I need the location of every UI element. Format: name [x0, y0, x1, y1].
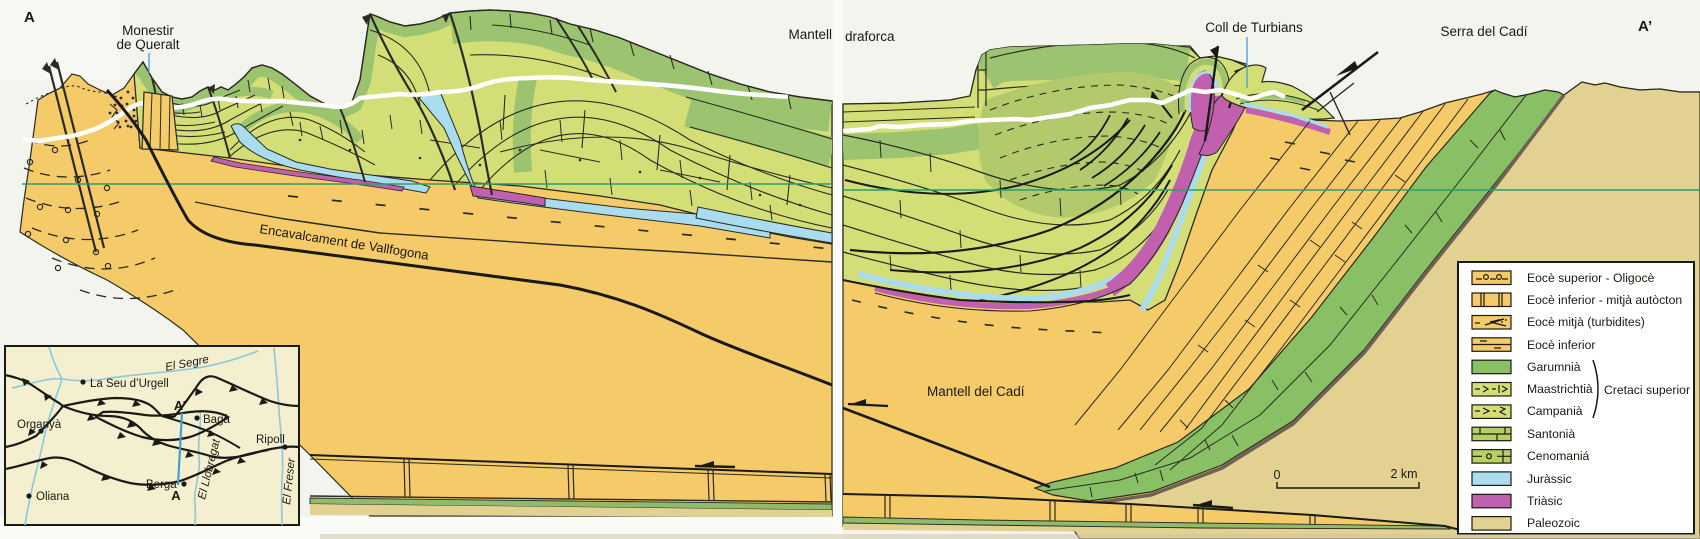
svg-text:Coll de Turbians: Coll de Turbians: [1205, 20, 1303, 35]
svg-text:Eocè inferior: Eocè inferior: [1527, 338, 1595, 352]
svg-text:Eocè superior - Oligocè: Eocè superior - Oligocè: [1527, 271, 1655, 285]
svg-text:Garumnià: Garumnià: [1527, 360, 1581, 374]
svg-text:Triàsic: Triàsic: [1527, 494, 1562, 508]
svg-text:La Seu d’Urgell: La Seu d’Urgell: [90, 378, 169, 390]
svg-text:Serra del Cadí: Serra del Cadí: [1440, 24, 1527, 39]
svg-text:Santonià: Santonià: [1527, 427, 1575, 441]
svg-text:Oliana: Oliana: [36, 491, 70, 503]
svg-text:Paleozoic: Paleozoic: [1527, 516, 1580, 530]
svg-text:A: A: [24, 9, 35, 26]
svg-text:draforca: draforca: [845, 29, 895, 44]
svg-text:Cretaci superior: Cretaci superior: [1604, 383, 1690, 397]
svg-text:Maastrichtià: Maastrichtià: [1527, 382, 1593, 396]
svg-text:Eocè inferior - mitjà autòcton: Eocè inferior - mitjà autòcton: [1527, 293, 1682, 307]
svg-text:Monestir: Monestir: [122, 23, 174, 38]
svg-text:Bagà: Bagà: [203, 414, 230, 426]
svg-text:Cenomaniá: Cenomaniá: [1527, 449, 1590, 463]
svg-text:Mantell: Mantell: [788, 27, 832, 42]
svg-text:Berga: Berga: [146, 479, 177, 491]
svg-text:Juràssic: Juràssic: [1527, 472, 1572, 486]
svg-text:A’: A’: [1638, 18, 1652, 35]
svg-text:0: 0: [1274, 468, 1281, 482]
svg-text:2 km: 2 km: [1390, 467, 1417, 481]
svg-text:Mantell del Cadí: Mantell del Cadí: [927, 384, 1025, 399]
svg-text:de Queralt: de Queralt: [116, 37, 179, 52]
svg-text:Ripoll: Ripoll: [256, 434, 285, 446]
svg-text:A’: A’: [174, 398, 186, 413]
svg-text:Campanià: Campanià: [1527, 404, 1583, 418]
svg-text:Eocè mitjà (turbidites): Eocè mitjà (turbidites): [1527, 315, 1645, 329]
